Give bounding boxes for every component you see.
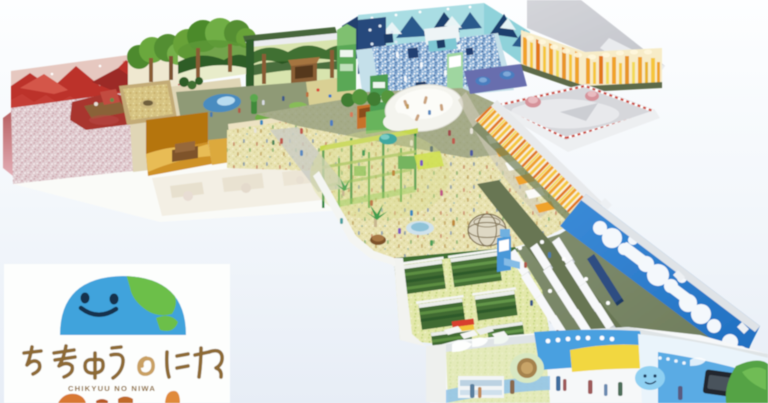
svg-text:CHIKYUU NO NIWA: CHIKYUU NO NIWA — [68, 384, 156, 393]
